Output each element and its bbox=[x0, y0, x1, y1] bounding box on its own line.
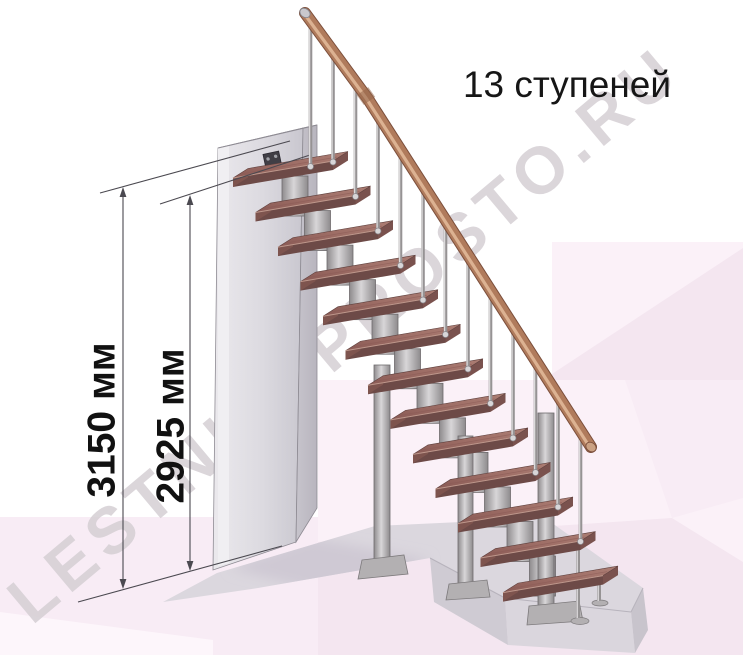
wall-edge-highlight bbox=[218, 145, 229, 566]
dimension-label-2925: 2925 мм bbox=[150, 348, 193, 503]
leg-base bbox=[571, 618, 589, 625]
ball-joint bbox=[353, 194, 359, 200]
ball-joint bbox=[555, 504, 561, 510]
ball-joint bbox=[443, 332, 449, 338]
support-column bbox=[458, 436, 473, 590]
ball-joint bbox=[488, 401, 494, 407]
staircase-illustration: LESTNICYPROSTO.RU 13 ступеней 3150 мм 29… bbox=[0, 0, 743, 655]
ball-joint bbox=[533, 470, 539, 476]
dimension-label-3150: 3150 мм bbox=[81, 342, 124, 497]
staircase-drawing: LESTNICYPROSTO.RU 13 ступеней 3150 мм 29… bbox=[0, 0, 743, 655]
page-title: 13 ступеней bbox=[463, 64, 671, 105]
ball-joint bbox=[308, 164, 314, 170]
ball-joint bbox=[398, 263, 404, 269]
ball-joint bbox=[578, 539, 584, 545]
ball-joint bbox=[330, 159, 336, 165]
ball-joint bbox=[465, 366, 471, 372]
ball-joint bbox=[375, 228, 381, 234]
ball-joint bbox=[420, 297, 426, 303]
ball-joint bbox=[510, 435, 516, 441]
support-column bbox=[374, 365, 390, 566]
